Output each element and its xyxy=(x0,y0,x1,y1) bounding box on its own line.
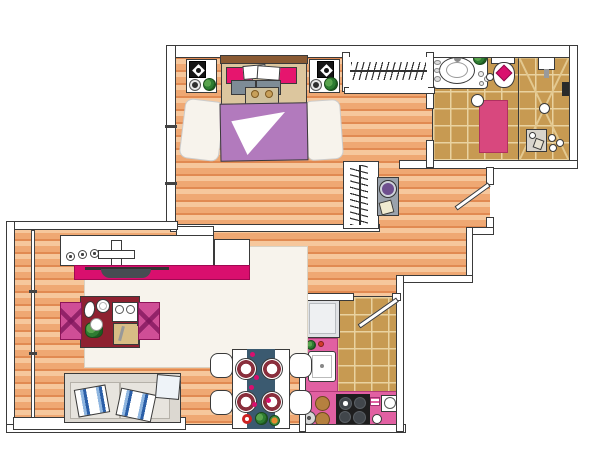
shower-drain xyxy=(539,103,550,114)
toiletry-jar xyxy=(479,81,484,86)
round-plate xyxy=(96,299,110,313)
plate xyxy=(261,358,283,380)
cutting-board xyxy=(113,323,139,345)
plate xyxy=(261,391,283,413)
wall-step-vertical xyxy=(466,227,473,282)
bedside-rug-left xyxy=(178,98,225,162)
bath-mat xyxy=(479,100,508,153)
soap-dish xyxy=(434,68,440,73)
lamp-bulb xyxy=(324,68,329,73)
striped-pillow xyxy=(74,384,110,417)
burner-icon xyxy=(353,411,366,424)
breakfast-chair xyxy=(210,353,233,378)
breakfast-chair xyxy=(210,390,233,415)
hanging-rail xyxy=(350,70,427,72)
sink-basin-inner xyxy=(446,62,468,78)
burner-icon xyxy=(339,411,351,423)
jar-icon xyxy=(556,139,564,147)
lamp-bulb xyxy=(196,68,201,73)
petal-dot xyxy=(266,398,271,403)
hanging-rail xyxy=(359,165,361,225)
outside-area xyxy=(0,40,168,224)
plant-icon xyxy=(203,78,216,91)
table-lamp-icon xyxy=(317,61,334,78)
shower-controls xyxy=(562,82,569,96)
bedside-rug-right xyxy=(303,99,344,161)
window-tick xyxy=(165,182,177,185)
tv-icon xyxy=(101,269,151,278)
flower-icon xyxy=(269,415,280,426)
breakfast-chair xyxy=(289,390,312,415)
centerpiece-flower xyxy=(90,318,103,331)
petal-dot xyxy=(254,375,259,380)
stool-top xyxy=(315,396,330,411)
soap-dish xyxy=(434,60,441,65)
glass-icon xyxy=(115,305,124,314)
petal-dot xyxy=(250,352,255,357)
jar-icon xyxy=(549,144,557,152)
glass-icon xyxy=(126,305,135,314)
outside-area xyxy=(472,232,600,282)
dining-chair-left xyxy=(60,302,82,340)
second-sink-bowl xyxy=(384,397,396,409)
wall-closet-bottom xyxy=(344,87,435,94)
wall-left xyxy=(6,221,15,433)
table-lamp-icon xyxy=(189,61,206,78)
soap-dish xyxy=(434,76,441,82)
teddy-bear-icon xyxy=(265,90,273,98)
shower-head-stem xyxy=(544,69,549,78)
floor-plan xyxy=(0,0,600,450)
balcony-glass-wall xyxy=(31,230,35,422)
wall-bathroom-left-lower xyxy=(426,140,434,168)
petal-dot xyxy=(249,385,254,390)
bath-stool xyxy=(471,94,484,107)
flower-icon xyxy=(255,412,268,425)
breakfast-chair xyxy=(289,353,312,378)
toilet-paper-icon xyxy=(486,73,494,81)
outside-area xyxy=(494,169,600,233)
outside-area xyxy=(404,280,600,433)
washer-door-icon xyxy=(380,181,396,197)
petal-dot xyxy=(252,402,257,407)
wall-step-horizontal-lower xyxy=(399,275,473,283)
flower-icon xyxy=(318,341,324,347)
toiletry-jar xyxy=(478,71,484,77)
wall-living-top xyxy=(6,221,178,230)
potholder xyxy=(370,397,380,406)
hifi-arm xyxy=(98,250,135,259)
arm-pillow xyxy=(155,374,181,400)
window-tick xyxy=(165,125,177,128)
small-bowl xyxy=(372,414,382,424)
knob-icon xyxy=(78,250,87,259)
alarm-clock-icon xyxy=(311,80,321,90)
alarm-clock-icon xyxy=(190,80,200,90)
wall-right-bathroom xyxy=(569,45,578,169)
flower-icon xyxy=(242,414,252,424)
knob-icon xyxy=(66,252,75,261)
drain-dot xyxy=(320,364,324,368)
white-pillow xyxy=(257,65,281,81)
fridge-top xyxy=(309,303,336,334)
glass-tick xyxy=(29,352,37,355)
plant-icon xyxy=(324,77,338,91)
burner-icon xyxy=(354,397,366,409)
teddy-bear-icon xyxy=(251,90,259,98)
burner-icon xyxy=(339,397,352,410)
glass-tick xyxy=(29,290,37,293)
dining-chair-right xyxy=(138,302,160,340)
cabinet xyxy=(214,239,250,266)
jar-icon xyxy=(548,134,556,142)
wall-bedroom-left-window xyxy=(166,45,176,230)
